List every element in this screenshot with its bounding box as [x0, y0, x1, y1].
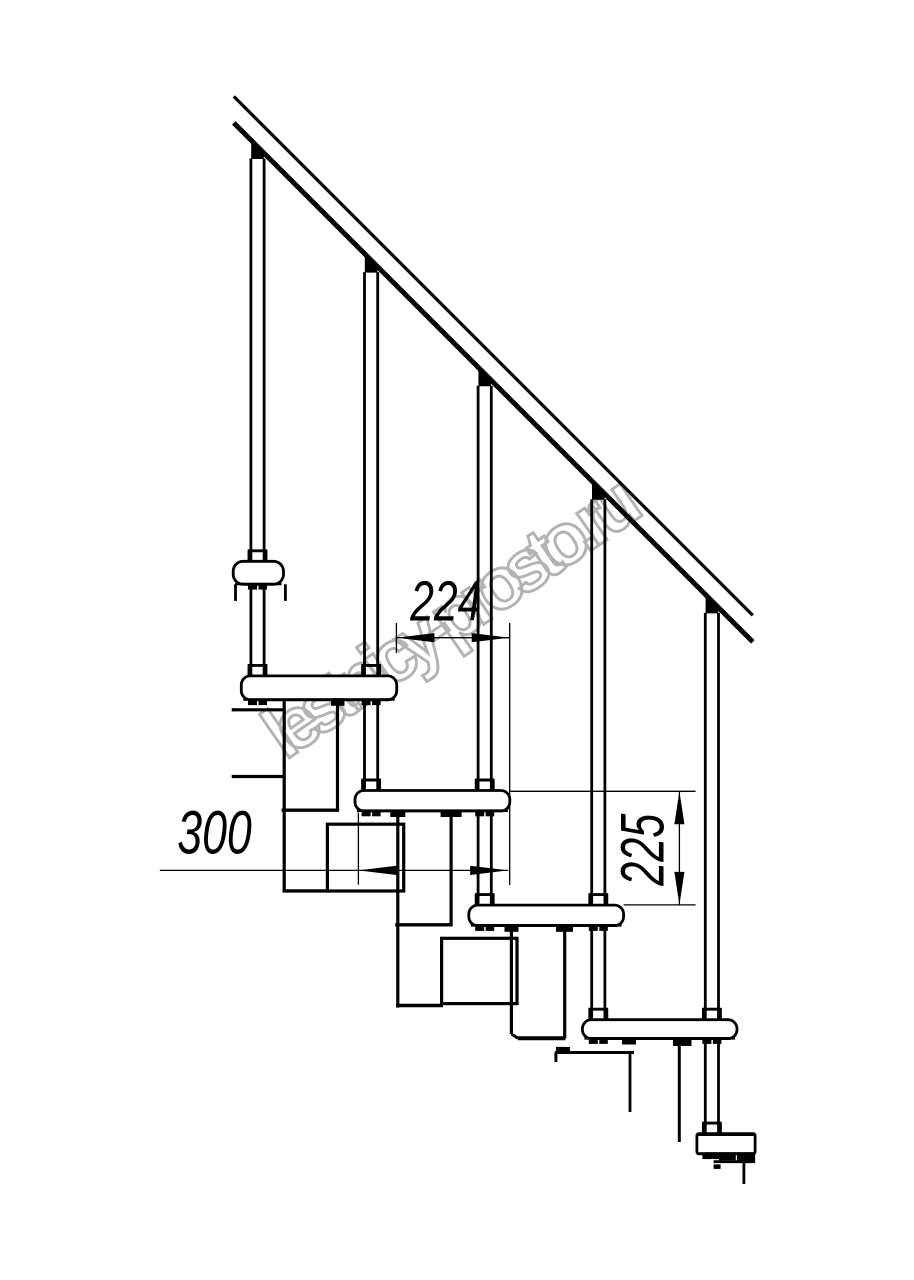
svg-text:300: 300: [177, 799, 252, 867]
svg-text:225: 225: [609, 813, 677, 886]
svg-text:224: 224: [410, 569, 482, 633]
